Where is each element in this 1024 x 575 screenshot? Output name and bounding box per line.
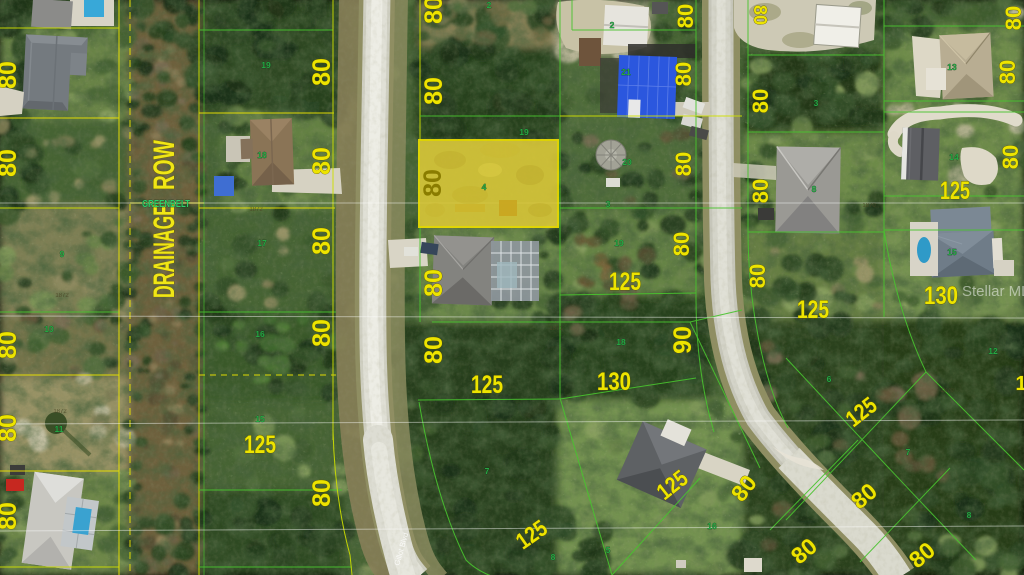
svg-text:130: 130 [924,282,958,310]
svg-text:3: 3 [814,98,819,108]
svg-text:18: 18 [616,337,626,347]
svg-text:80: 80 [750,5,770,25]
svg-text:8: 8 [812,184,817,194]
svg-text:80: 80 [0,149,22,177]
svg-text:11: 11 [55,424,64,434]
svg-text:6: 6 [827,374,832,384]
svg-text:80: 80 [420,77,448,105]
svg-text:2: 2 [610,20,615,30]
svg-text:7: 7 [485,466,490,476]
svg-text:130: 130 [597,368,631,396]
svg-text:2: 2 [487,0,492,10]
svg-text:1: 1 [1015,373,1024,395]
svg-text:16: 16 [707,521,717,531]
svg-text:1872: 1872 [55,293,69,299]
svg-text:80: 80 [0,502,22,530]
svg-text:DRAINAGE: DRAINAGE [148,204,181,298]
svg-text:125: 125 [940,177,970,205]
svg-text:80: 80 [419,169,447,197]
svg-text:16: 16 [255,329,265,339]
svg-text:15: 15 [947,247,957,257]
svg-text:14: 14 [949,152,959,162]
svg-text:10: 10 [44,324,54,334]
svg-text:80: 80 [0,61,22,89]
svg-text:80: 80 [0,414,22,442]
svg-text:125: 125 [471,371,503,399]
svg-text:80: 80 [420,336,448,364]
svg-text:12: 12 [988,346,998,356]
svg-text:ROW: ROW [148,140,181,190]
svg-text:9: 9 [60,249,65,259]
svg-text:17: 17 [257,238,267,248]
svg-text:19: 19 [519,127,529,137]
svg-text:80: 80 [673,4,698,28]
svg-text:80: 80 [1001,6,1024,30]
svg-text:80: 80 [308,319,336,347]
svg-text:90: 90 [669,326,697,354]
svg-text:1870: 1870 [862,203,876,209]
svg-text:1871: 1871 [549,326,563,332]
svg-text:80: 80 [308,58,336,86]
svg-text:80: 80 [308,147,336,175]
svg-text:125: 125 [244,431,276,459]
svg-text:80: 80 [420,0,448,24]
svg-text:80: 80 [748,179,773,203]
svg-text:80: 80 [308,227,336,255]
svg-text:5: 5 [606,545,611,555]
svg-text:3: 3 [606,199,611,209]
svg-text:80: 80 [420,269,448,297]
svg-text:21: 21 [621,67,631,77]
svg-text:80: 80 [669,232,694,256]
svg-text:80: 80 [748,89,773,113]
svg-text:8: 8 [967,510,972,520]
svg-text:1872: 1872 [53,409,67,415]
svg-text:80: 80 [995,60,1020,84]
svg-text:GREENBELT: GREENBELT [142,199,190,210]
svg-text:80: 80 [671,62,696,86]
svg-text:80: 80 [998,145,1023,169]
svg-text:20: 20 [622,157,632,167]
svg-text:7: 7 [906,447,911,457]
svg-text:19: 19 [614,238,624,248]
svg-text:80: 80 [745,264,770,288]
svg-text:80: 80 [308,479,336,507]
svg-text:1872: 1872 [249,207,263,213]
svg-text:19: 19 [261,60,271,70]
svg-text:4: 4 [482,182,487,192]
svg-text:125: 125 [609,268,641,296]
svg-text:Stellar MLS: Stellar MLS [962,283,1024,300]
svg-text:1870: 1870 [940,388,954,394]
svg-text:8: 8 [551,552,556,562]
svg-text:18: 18 [257,150,267,160]
svg-text:15: 15 [255,414,265,424]
svg-text:80: 80 [0,331,22,359]
svg-text:13: 13 [947,62,957,72]
svg-text:125: 125 [797,296,829,324]
svg-text:80: 80 [671,152,696,176]
